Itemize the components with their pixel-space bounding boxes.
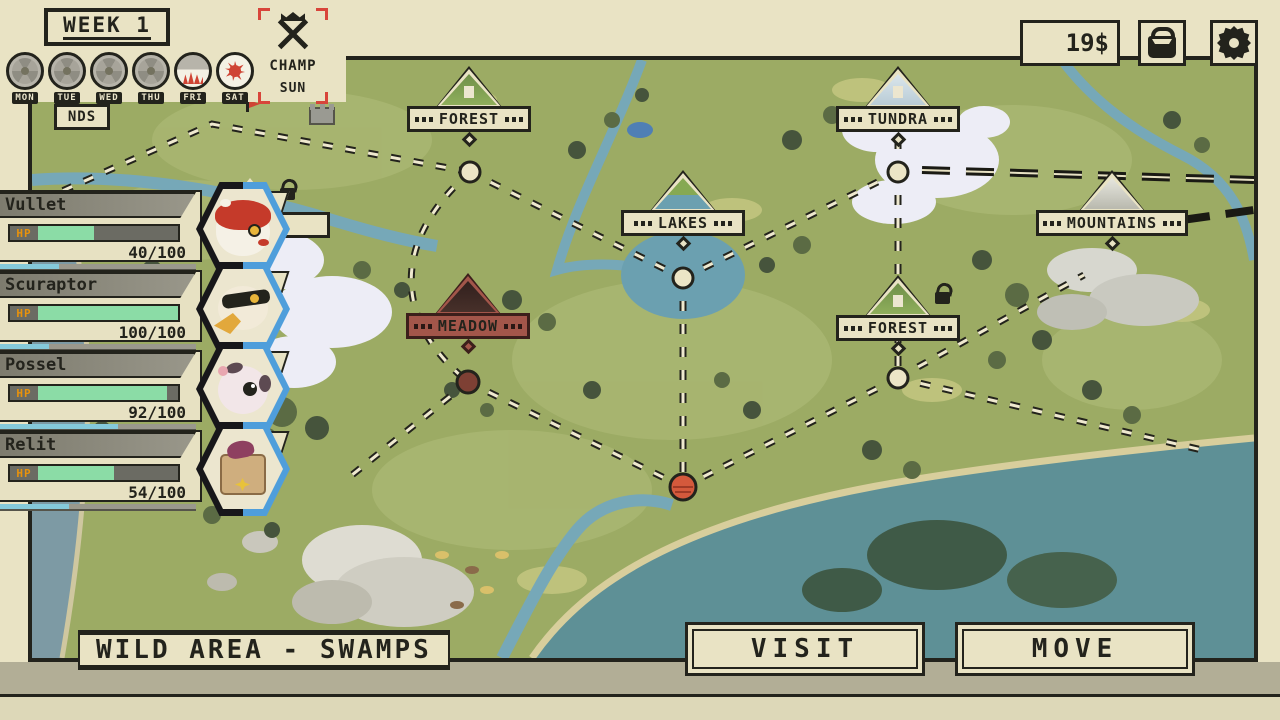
location-label: LAKES — [658, 214, 708, 232]
member-name: Relit — [0, 435, 56, 455]
hp-bar: HP — [8, 224, 180, 242]
calendar-panel: WEEK 1 MON TUE WED THU FRI — [0, 0, 346, 102]
castle-icon — [310, 104, 334, 124]
inventory-button[interactable] — [1138, 20, 1186, 66]
move-button[interactable]: MOVE — [955, 622, 1195, 676]
gear-icon — [1217, 26, 1251, 60]
red-ferret-portrait — [212, 198, 274, 260]
party-member-card[interactable]: Vullet 9 HP 40/100 — [0, 190, 300, 268]
hp-value: 40/100 — [0, 243, 186, 262]
possum-portrait — [212, 358, 274, 420]
day-tuesday: TUE — [46, 52, 88, 104]
day-wednesday: WED — [88, 52, 130, 104]
visit-button[interactable]: VISIT — [685, 622, 925, 676]
xp-bar — [0, 504, 196, 511]
hp-value: 54/100 — [0, 483, 186, 502]
location-label: MEADOW — [438, 317, 498, 335]
day-saturday: SAT — [214, 52, 256, 104]
bag-creature-portrait — [212, 438, 274, 500]
bottom-frame — [0, 697, 1280, 720]
node-lakes[interactable] — [673, 268, 693, 288]
day-orb-icon — [48, 52, 86, 90]
game-screen: NDS FOREST TUNDRA LAKES MOUNTAINS — [0, 0, 1280, 720]
settings-button[interactable] — [1210, 20, 1258, 66]
node-forest-east[interactable] — [888, 368, 908, 388]
crossed-swords-icon — [273, 16, 313, 50]
day-orb-icon — [6, 52, 44, 90]
location-label: FOREST — [439, 110, 499, 128]
location-label: MOUNTAINS — [1067, 214, 1157, 232]
member-name: Possel — [0, 355, 66, 375]
raptor-bird-portrait — [212, 278, 274, 340]
bag-icon — [1148, 36, 1176, 58]
party-member-card[interactable]: Scuraptor 10 HP 100/100 — [0, 270, 300, 348]
day-orb-icon — [90, 52, 128, 90]
location-mountains[interactable]: MOUNTAINS — [1048, 170, 1176, 249]
day-thursday: THU — [130, 52, 172, 104]
member-name: Vullet — [0, 195, 66, 215]
day-orb-icon — [132, 52, 170, 90]
hp-bar: HP — [8, 384, 180, 402]
day-sun-icon — [216, 52, 254, 90]
party-member-card[interactable]: Possel 7 HP 92/100 — [0, 350, 300, 428]
location-meadow-selected[interactable]: MEADOW — [404, 273, 532, 352]
location-label: FOREST — [868, 319, 928, 337]
day-friday: FRI — [172, 52, 214, 104]
hp-value: 100/100 — [0, 323, 186, 342]
location-tundra[interactable]: TUNDRA — [834, 66, 962, 145]
party-member-card[interactable]: Relit 8 HP 54/100 — [0, 430, 300, 508]
week-counter: WEEK 1 — [44, 8, 170, 46]
day-sunrise-icon — [174, 52, 212, 90]
location-banner-fragment-west[interactable]: NDS — [54, 104, 110, 130]
node-tundra[interactable] — [888, 162, 908, 182]
champ-day-badge: CHAMP SUN — [262, 12, 324, 100]
selected-area-label: WILD AREA - SWAMPS — [78, 630, 450, 670]
location-forest-west[interactable]: FOREST — [405, 66, 533, 145]
location-lakes[interactable]: LAKES — [619, 170, 747, 249]
day-monday: MON — [4, 52, 46, 104]
location-label: TUNDRA — [868, 110, 928, 128]
hp-bar: HP — [8, 304, 180, 322]
unlock-icon-forest-east — [935, 292, 950, 304]
week-days-row: MON TUE WED THU FRI SAT — [4, 52, 256, 104]
member-name: Scuraptor — [0, 275, 97, 295]
node-forest-west[interactable] — [460, 162, 480, 182]
hp-bar: HP — [8, 464, 180, 482]
node-meadow[interactable] — [457, 371, 479, 393]
hp-value: 92/100 — [0, 403, 186, 422]
location-label-fragment: NDS — [68, 109, 96, 125]
money-counter: 19$ — [1020, 20, 1120, 66]
